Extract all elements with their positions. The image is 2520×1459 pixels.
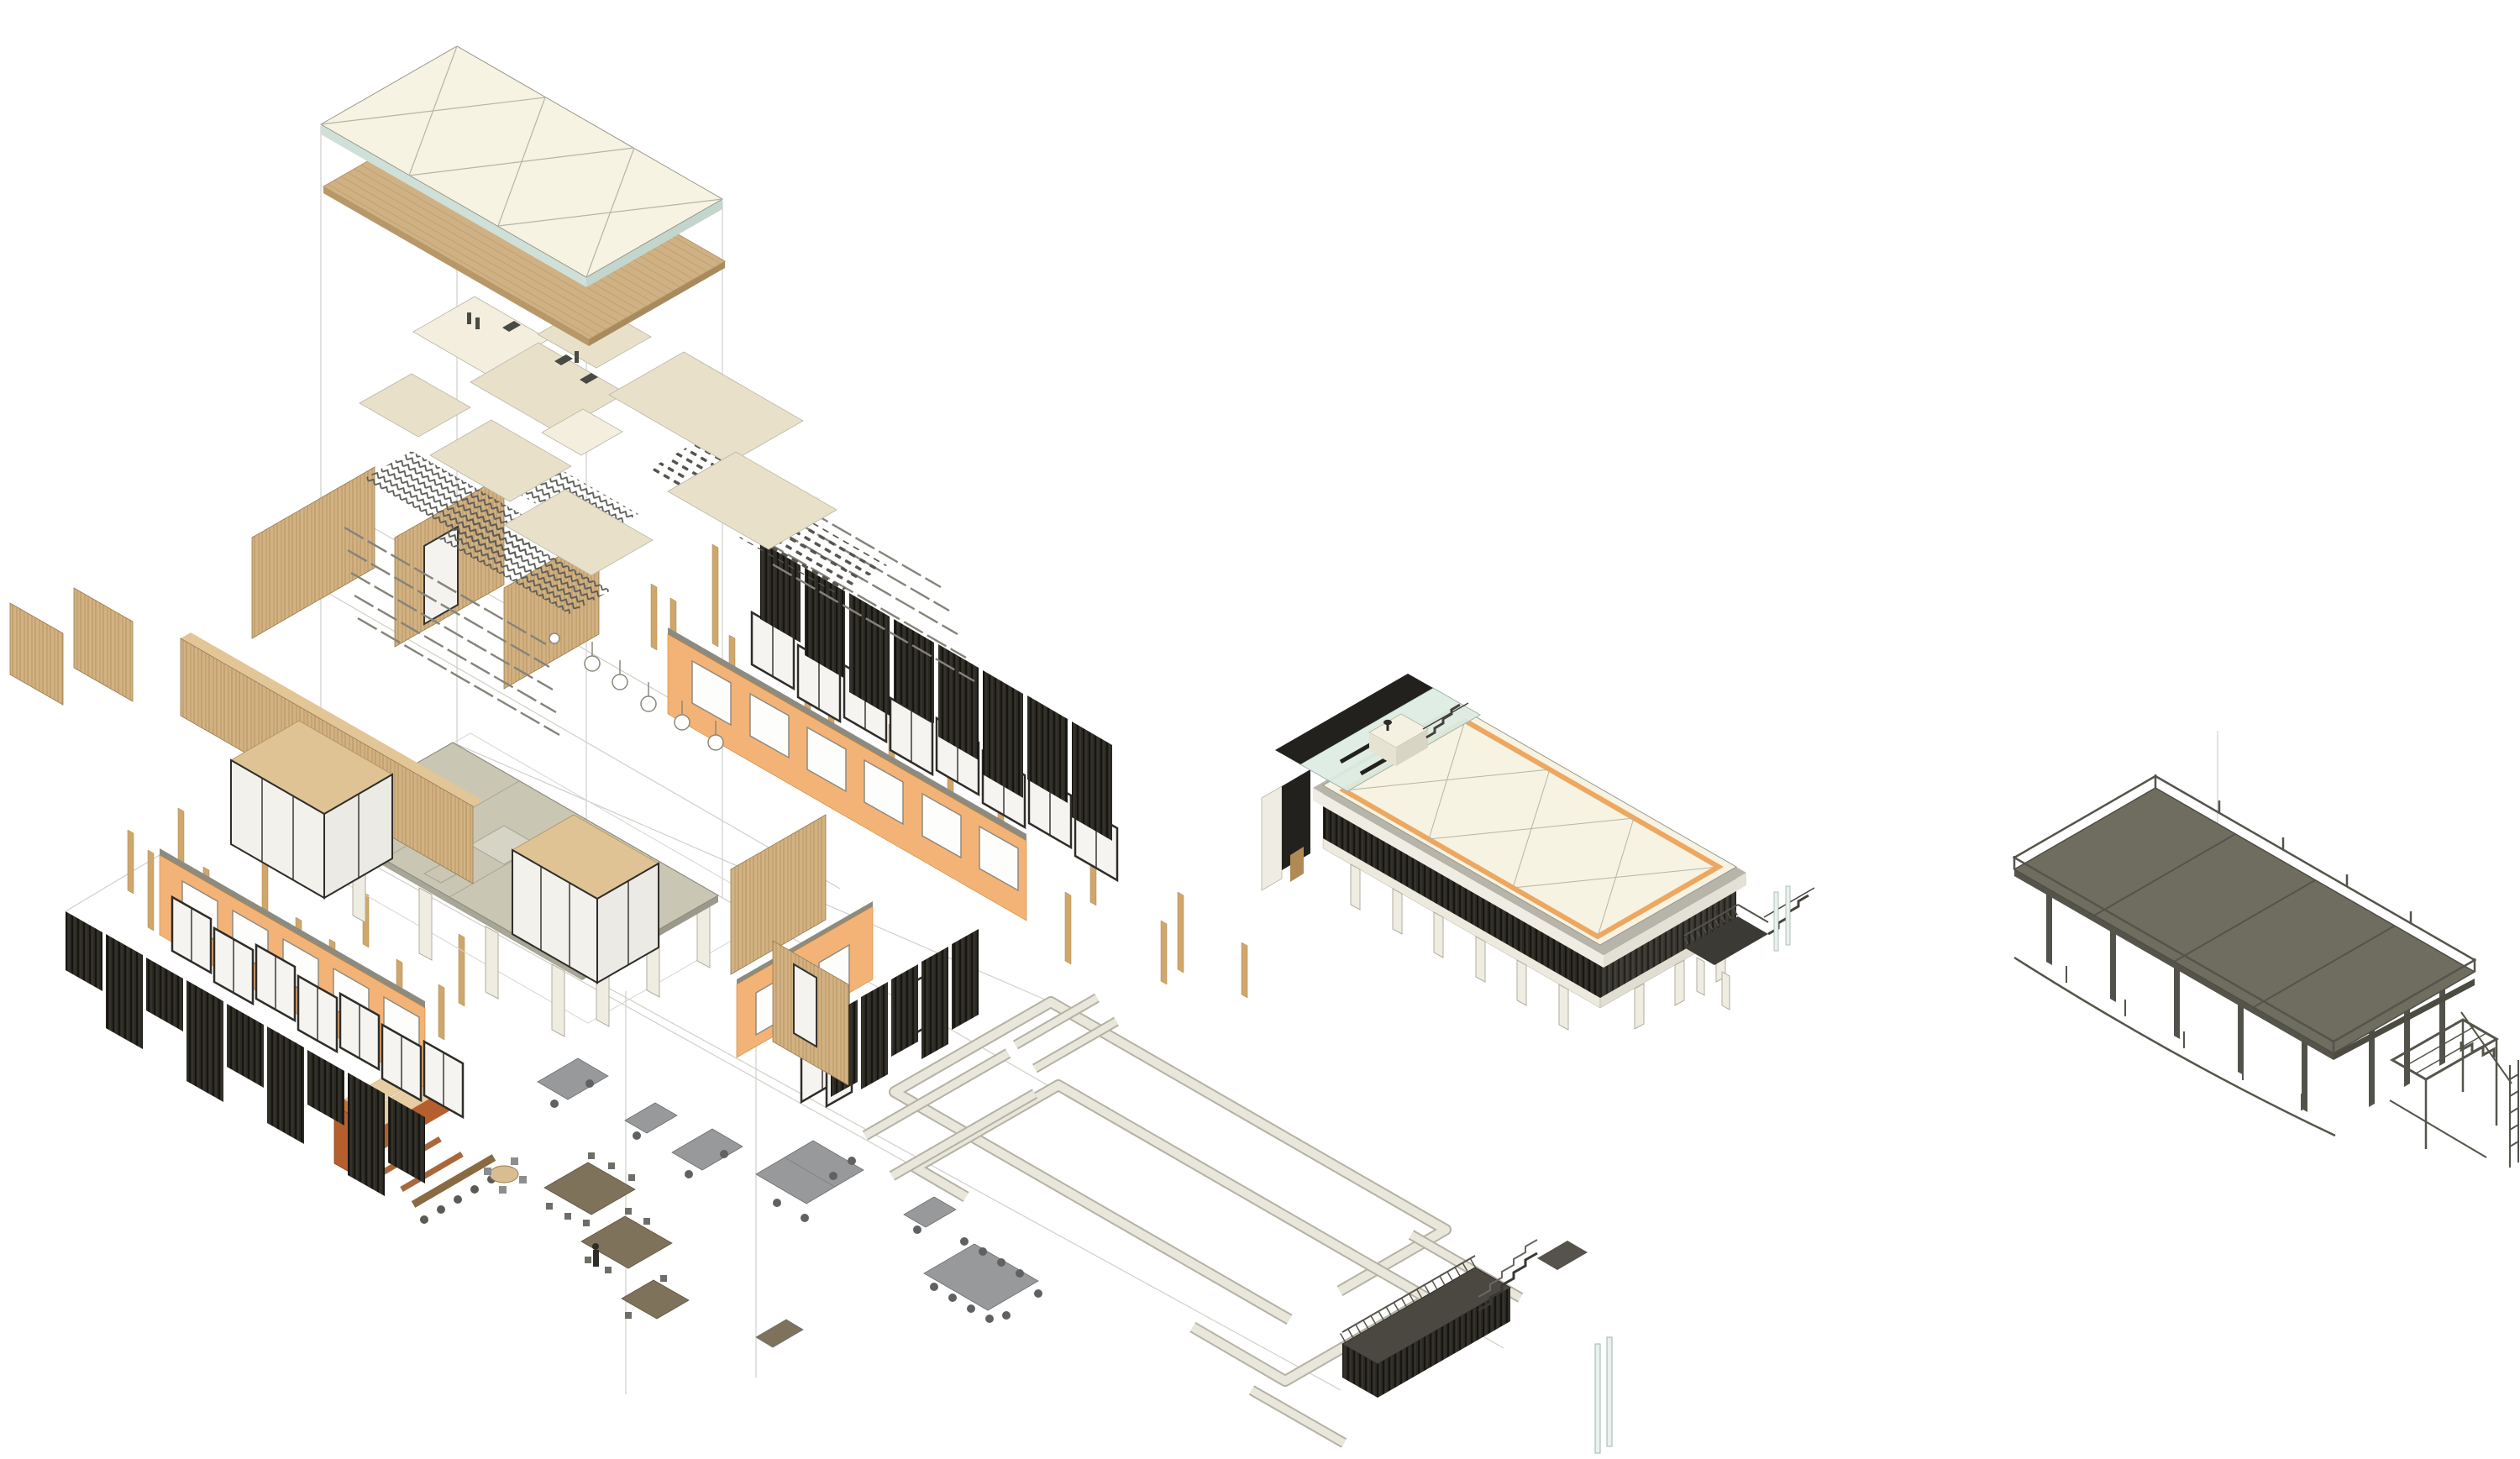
exploded-axonometric-diagram: [0, 0, 2520, 1459]
mezzanine-box-2: [512, 815, 659, 983]
office-desks: [538, 1058, 1038, 1347]
structural-frame-view: [2014, 774, 2518, 1168]
bar-counter-stools: [413, 1157, 496, 1224]
projection-guide-lines: [66, 48, 2218, 1394]
ground-edge-beams: [865, 998, 1520, 1443]
end-bay: [1262, 769, 1310, 890]
diagram-canvas: [0, 0, 2520, 1459]
assembled-building-view: [1262, 674, 1814, 1030]
service-ladder: [2510, 1060, 2518, 1168]
human-figure: [592, 1243, 599, 1267]
glass-posts: [1595, 1337, 1612, 1453]
dining-tables: [544, 1152, 689, 1319]
